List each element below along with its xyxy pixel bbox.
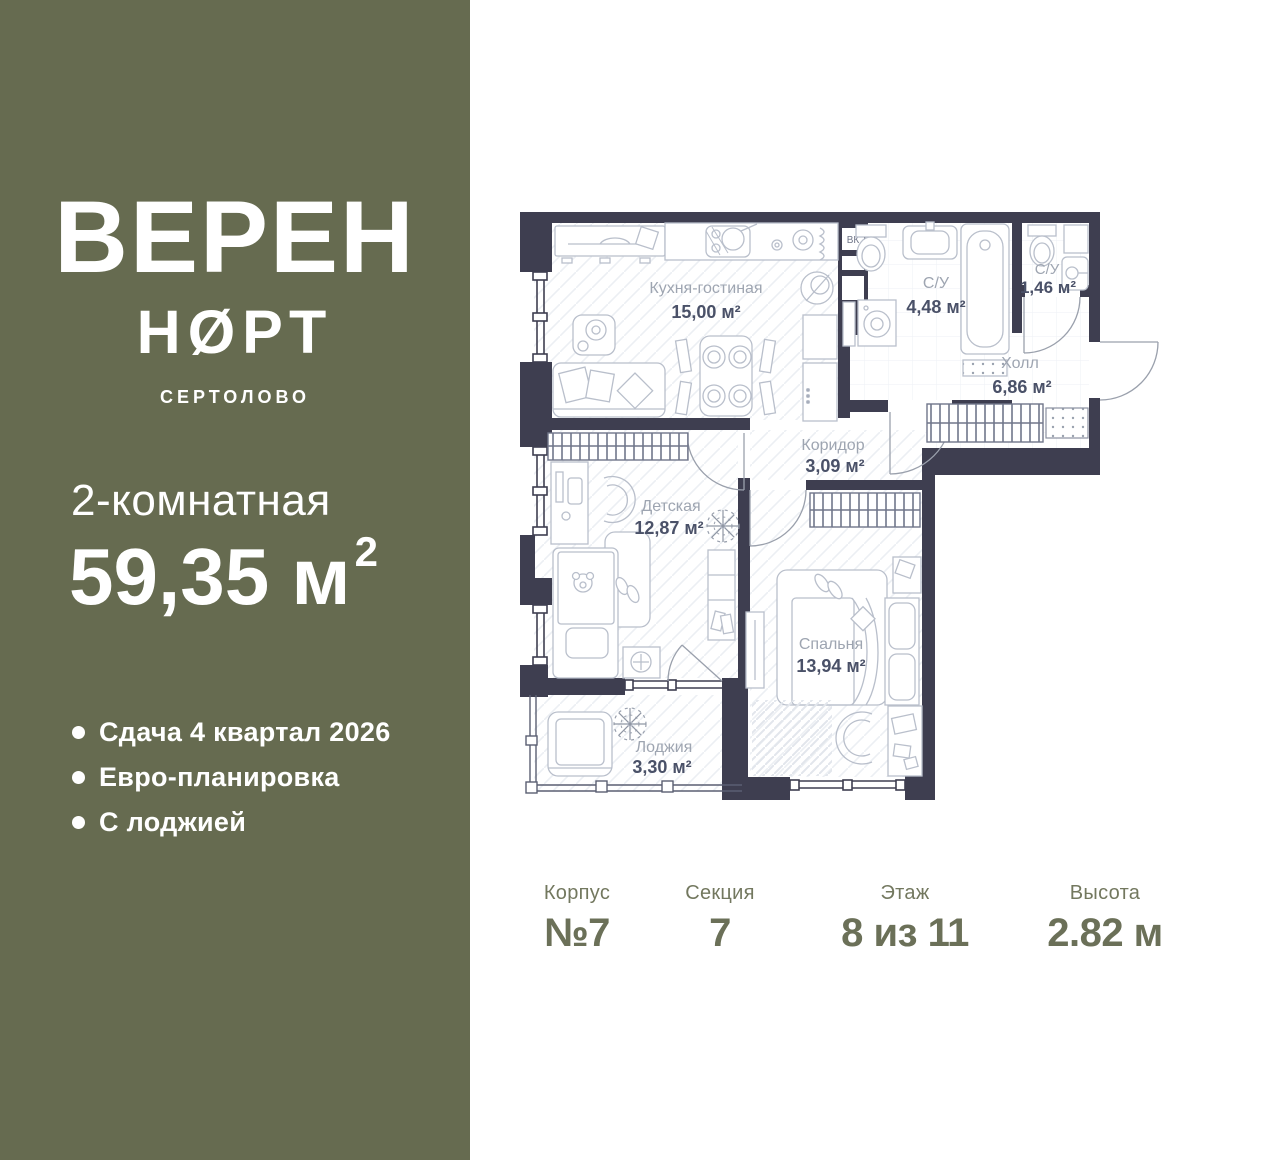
pillow — [889, 654, 915, 700]
loggia-armchair — [548, 712, 612, 776]
room-area-loggia: 3,30 м² — [632, 757, 691, 777]
room-name-kitchen: Кухня-гостиная — [649, 280, 762, 297]
wardrobe-children — [548, 433, 688, 460]
info-building: Корпус №7 — [544, 882, 610, 956]
cabinet — [803, 315, 837, 359]
info-value: 7 — [685, 911, 755, 956]
info-height: Высота 2.82 м — [1047, 882, 1163, 956]
wc-cabinet — [1064, 225, 1088, 253]
room-area-bathroom: 4,48 м² — [906, 297, 965, 317]
wardrobe-bedroom — [810, 493, 920, 527]
info-label: Высота — [1047, 882, 1163, 905]
info-section: Секция 7 — [685, 882, 755, 956]
room-name-bathroom: С/У — [923, 275, 950, 292]
info-label: Корпус — [544, 882, 610, 905]
pillow — [889, 603, 915, 649]
wardrobe-hall — [927, 404, 1043, 442]
info-value: №7 — [544, 911, 610, 956]
entrance-door — [1100, 342, 1158, 400]
info-floor: Этаж 8 из 11 — [841, 882, 969, 956]
room-area-wc: 1,46 м² — [1020, 278, 1076, 297]
room-name-bedroom: Спальня — [799, 636, 863, 653]
room-name-loggia: Лоджия — [636, 739, 693, 756]
room-area-kitchen: 15,00 м² — [671, 302, 740, 322]
bath-cabinet — [843, 302, 855, 346]
toilet — [1028, 225, 1056, 236]
room-name-corridor: Коридор — [801, 437, 864, 454]
room-area-children: 12,87 м² — [634, 518, 703, 538]
room-name-wc: С/У — [1035, 261, 1060, 278]
info-value: 2.82 м — [1047, 911, 1163, 956]
room-area-bedroom: 13,94 м² — [796, 656, 865, 676]
room-name-hall: Холл — [1001, 355, 1039, 372]
apartment-card: ВЕРЕН НØРТ СЕРТОЛОВО 2-комнатная 59,35 м… — [0, 0, 1280, 1160]
shoe-cabinet — [1046, 408, 1088, 438]
bedroom-rug — [752, 700, 832, 776]
room-area-corridor: 3,09 м² — [805, 456, 864, 476]
info-value: 8 из 11 — [841, 911, 969, 956]
info-label: Этаж — [841, 882, 969, 905]
info-label: Секция — [685, 882, 755, 905]
room-area-hall: 6,86 м² — [992, 377, 1051, 397]
toilet — [856, 225, 886, 237]
room-name-children: Детская — [641, 498, 700, 515]
apartment-info-bar: Корпус №7 Секция 7 Этаж 8 из 11 Высота 2… — [0, 882, 1280, 992]
